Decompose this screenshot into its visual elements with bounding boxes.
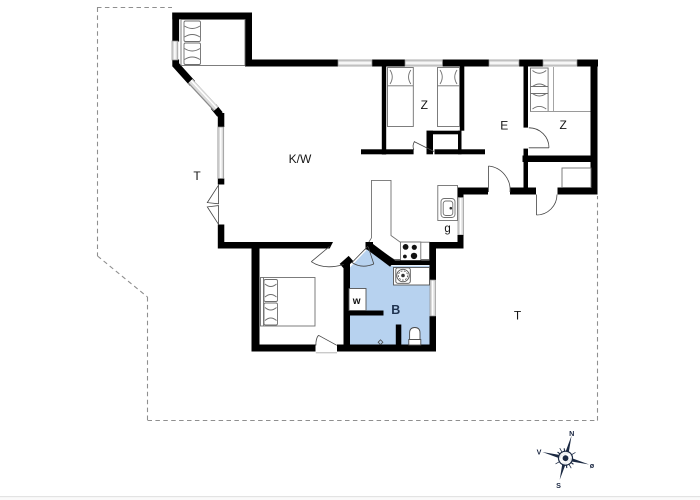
svg-text:g: g	[444, 223, 450, 235]
svg-text:S: S	[556, 481, 561, 490]
svg-text:B: B	[391, 303, 400, 317]
svg-text:N: N	[569, 429, 574, 438]
svg-text:Z: Z	[560, 118, 567, 132]
svg-text:K/W: K/W	[289, 152, 312, 166]
svg-text:ø: ø	[590, 461, 595, 470]
svg-text:Z: Z	[421, 98, 428, 112]
svg-text:w: w	[352, 296, 361, 307]
svg-text:V: V	[537, 447, 542, 456]
svg-text:T: T	[514, 309, 522, 323]
svg-text:E: E	[500, 119, 508, 133]
svg-text:T: T	[193, 169, 201, 183]
